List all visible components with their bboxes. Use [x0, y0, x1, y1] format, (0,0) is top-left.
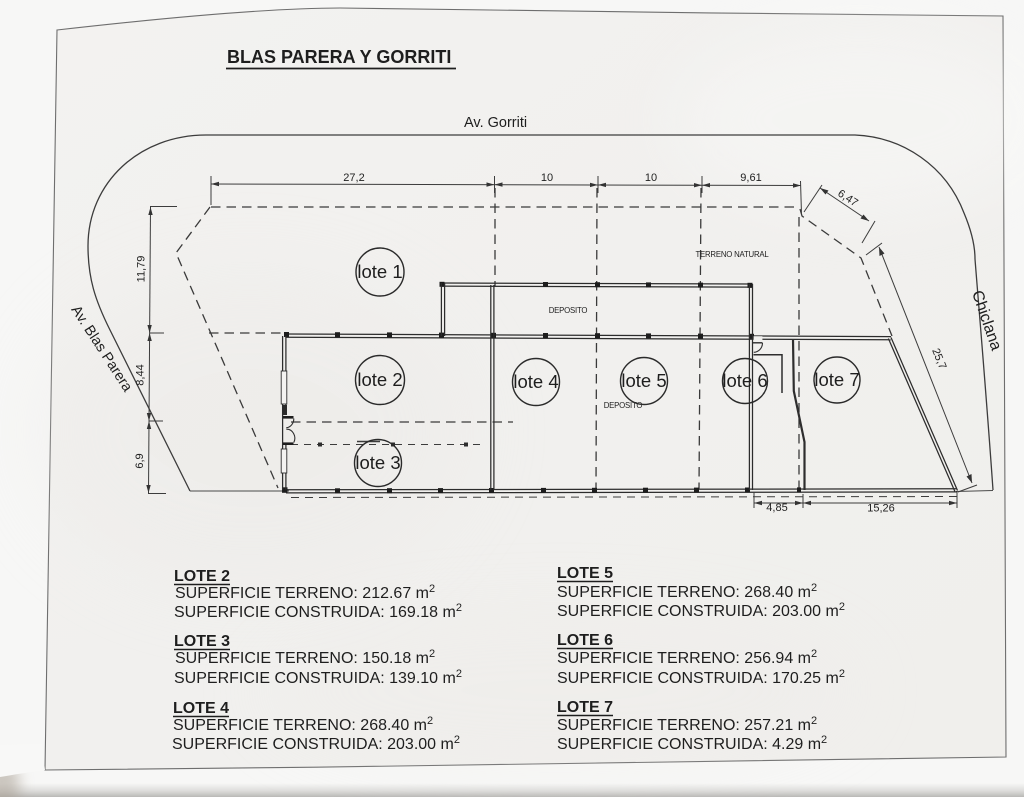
- svg-text:SUPERFICIE TERRENO: 150.18 m2: SUPERFICIE TERRENO: 150.18 m2: [175, 648, 435, 667]
- svg-text:Av. Gorriti: Av. Gorriti: [464, 115, 527, 131]
- svg-text:SUPERFICIE CONSTRUIDA: 139.10: SUPERFICIE CONSTRUIDA: 139.10 m2: [174, 668, 462, 687]
- svg-text:15,26: 15,26: [867, 503, 895, 515]
- svg-text:lote 7: lote 7: [814, 369, 859, 390]
- svg-text:lote 4: lote 4: [513, 371, 558, 392]
- svg-text:LOTE 4: LOTE 4: [173, 700, 229, 717]
- svg-text:4,85: 4,85: [766, 502, 787, 514]
- svg-text:lote 2: lote 2: [357, 369, 402, 390]
- svg-text:lote 6: lote 6: [722, 370, 767, 391]
- svg-text:9,61: 9,61: [740, 172, 761, 184]
- svg-text:TERRENO NATURAL: TERRENO NATURAL: [695, 250, 769, 259]
- svg-text:SUPERFICIE TERRENO: 268.40 m2: SUPERFICIE TERRENO: 268.40 m2: [557, 582, 817, 601]
- svg-text:SUPERFICIE TERRENO: 268.40 m2: SUPERFICIE TERRENO: 268.40 m2: [173, 715, 433, 734]
- svg-text:DEPOSITO: DEPOSITO: [604, 401, 643, 410]
- svg-text:lote 5: lote 5: [621, 370, 666, 391]
- svg-text:SUPERFICIE TERRENO: 256.94 m2: SUPERFICIE TERRENO: 256.94 m2: [557, 648, 817, 667]
- svg-text:DEPOSITO: DEPOSITO: [549, 306, 588, 315]
- svg-text:8,44: 8,44: [135, 364, 147, 385]
- svg-text:SUPERFICIE TERRENO: 212.67 m2: SUPERFICIE TERRENO: 212.67 m2: [175, 583, 435, 602]
- svg-text:lote 3: lote 3: [355, 452, 400, 473]
- svg-text:LOTE 6: LOTE 6: [557, 632, 613, 649]
- svg-text:10: 10: [541, 172, 553, 184]
- svg-text:LOTE 2: LOTE 2: [174, 568, 230, 585]
- svg-text:SUPERFICIE TERRENO: 257.21 m2: SUPERFICIE TERRENO: 257.21 m2: [557, 715, 817, 734]
- svg-text:BLAS PARERA Y GORRITI: BLAS PARERA Y GORRITI: [227, 47, 451, 67]
- svg-text:SUPERFICIE CONSTRUIDA: 203.00: SUPERFICIE CONSTRUIDA: 203.00 m2: [557, 601, 845, 620]
- svg-text:LOTE 3: LOTE 3: [174, 633, 230, 650]
- svg-text:SUPERFICIE CONSTRUIDA: 203.00: SUPERFICIE CONSTRUIDA: 203.00 m2: [172, 734, 460, 753]
- svg-text:SUPERFICIE CONSTRUIDA: 170.25: SUPERFICIE CONSTRUIDA: 170.25 m2: [557, 668, 845, 687]
- svg-text:10: 10: [645, 172, 657, 184]
- svg-text:LOTE 5: LOTE 5: [557, 565, 613, 582]
- svg-text:SUPERFICIE CONSTRUIDA: 169.18: SUPERFICIE CONSTRUIDA: 169.18 m2: [174, 602, 462, 621]
- svg-text:lote 1: lote 1: [357, 261, 402, 282]
- svg-text:27,2: 27,2: [343, 172, 364, 184]
- svg-text:6,9: 6,9: [134, 453, 146, 468]
- svg-text:11,79: 11,79: [136, 256, 148, 283]
- svg-text:LOTE 7: LOTE 7: [557, 699, 613, 716]
- svg-text:SUPERFICIE CONSTRUIDA: 4.29 m2: SUPERFICIE CONSTRUIDA: 4.29 m2: [557, 734, 827, 753]
